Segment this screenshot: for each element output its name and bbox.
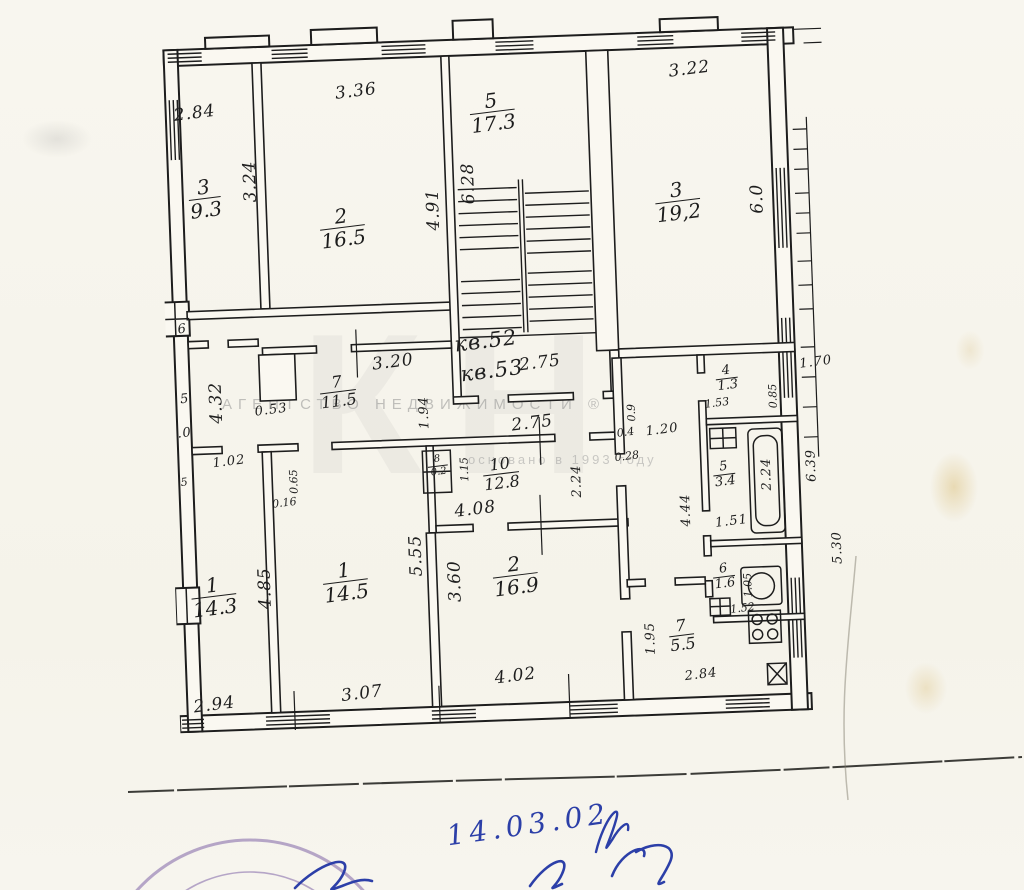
scanned-paper: КН АГЕНТСТВО НЕДВИЖИМОСТИ ® основано в 1… — [0, 0, 1024, 890]
signature-strokes — [295, 845, 672, 889]
ink-annotations: ое унитарн — [0, 0, 1024, 890]
stamp-text: ое унитарн — [132, 886, 237, 890]
round-stamp: ое унитарн — [98, 840, 402, 890]
svg-text:ое унитарн: ое унитарн — [132, 886, 237, 890]
paper-edge-line — [844, 556, 856, 800]
paper-fold-line — [128, 757, 1022, 792]
